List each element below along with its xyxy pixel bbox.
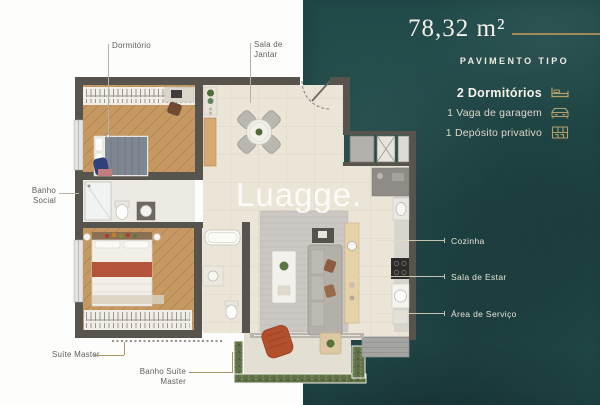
bench [98, 169, 112, 176]
bed-runner [92, 262, 152, 277]
connector-line [59, 193, 79, 194]
feature-label: 1 Vaga de garagem [447, 107, 542, 119]
label-banho-suite-master: Banho Suíte Master [136, 367, 186, 386]
area-value: 78,32 m² [408, 15, 505, 43]
connector-line [94, 355, 124, 356]
feature-row: 2 Dormitórios [457, 85, 570, 100]
toilet [116, 205, 128, 220]
pillow [95, 138, 103, 151]
floor-plan [62, 70, 422, 390]
toilet [226, 305, 237, 319]
pillow [95, 241, 120, 248]
watermark-logo: Luagge. [236, 176, 362, 214]
duct [398, 136, 409, 162]
feature-row: 1 Depósito privativo [446, 125, 570, 140]
label-banho-social: Banho Social [20, 186, 56, 205]
feature-label: 2 Dormitórios [457, 86, 542, 100]
laptop [171, 90, 182, 98]
rug [92, 295, 164, 304]
divider-line [512, 33, 600, 35]
connector-tick [444, 238, 445, 243]
hangers [86, 312, 190, 328]
centerpiece-plant [256, 129, 263, 136]
sink [141, 206, 152, 217]
sink [208, 271, 218, 281]
living-furniture [260, 211, 348, 335]
bed-icon [550, 85, 570, 100]
corner-counter [372, 168, 409, 196]
connector-line [189, 372, 233, 373]
label-suite-master: Suíte Master [52, 350, 100, 360]
car-icon [550, 105, 570, 120]
nightstand [154, 234, 161, 241]
label-cozinha: Cozinha [451, 236, 485, 246]
plant [327, 340, 335, 348]
kitchen-sink [396, 203, 406, 216]
connector-line [124, 342, 125, 355]
feature-row: 1 Vaga de garagem [447, 105, 570, 120]
connector-tick [444, 311, 445, 316]
connector-line [357, 276, 444, 277]
panel-subtitle: PAVIMENTO TIPO [460, 56, 569, 66]
shaft [350, 136, 374, 162]
connector-line [250, 43, 251, 103]
connector-tick [444, 274, 445, 279]
pillow [124, 241, 149, 248]
feature-list: 2 Dormitórios 1 Vaga de garagem 1 Depósi… [446, 85, 570, 140]
connector-line [232, 352, 233, 372]
sideboard [204, 118, 216, 166]
connector-line [108, 44, 109, 136]
label-area-de-servico: Área de Serviço [451, 309, 517, 319]
connector-dot [106, 134, 110, 138]
brochure-page: Luagge. Dormitório Sala de Jantar Banho … [0, 0, 600, 405]
label-dormitorio: Dormitório [112, 41, 151, 51]
plant [280, 262, 289, 271]
feature-label: 1 Depósito privativo [446, 127, 542, 139]
peninsula [345, 223, 359, 323]
connector-line [376, 313, 444, 314]
building-core [350, 136, 409, 162]
label-sala-de-jantar: Sala de Jantar [254, 40, 283, 59]
connector-line [376, 240, 444, 241]
service-ledge [362, 337, 409, 357]
label-sala-de-estar: Sala de Estar [451, 272, 507, 282]
storage-icon [550, 125, 570, 140]
nightstand [84, 234, 91, 241]
